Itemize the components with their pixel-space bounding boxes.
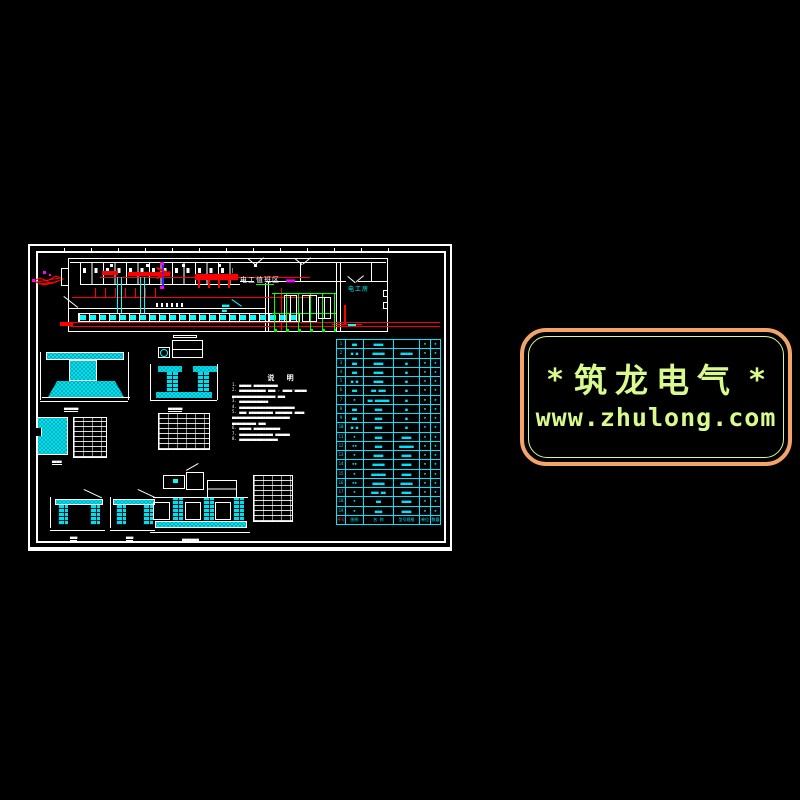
cell-no: 15	[337, 469, 346, 478]
table-row: 15 ▪ ▄▄▄▄▄▄ ▄▄▄▄ ▪ ▪	[337, 469, 441, 478]
cell-name: ▄▄	[364, 497, 394, 506]
cell-unit: ▪	[420, 451, 431, 460]
b-dim	[110, 530, 155, 531]
table-row: 14 ▪▪ ▄▄▄▄▄ ▄▄▄▄ ▪ ▪	[337, 460, 441, 469]
cell-symbol: ▄▄	[346, 404, 364, 413]
table-row: 6 ▄▄ ▄▄ ▄▄▄ ▄ ▪ ▪	[337, 386, 441, 395]
cell-unit: ▪	[420, 432, 431, 441]
cell-symbol: ▪	[346, 506, 364, 515]
equipment-table-body: 1 ▄▄ ▄▄▄▄ ▪ ▪ 2 ▄ ▄ ▄▄▄▄▄ ▄▄▄▄▄ ▪ ▪	[337, 340, 441, 516]
d7-rect	[186, 472, 204, 490]
cell-name: ▄▄▄▄	[364, 340, 394, 349]
cell-spec: ▄▄▄▄▄▄	[394, 441, 420, 450]
cell-no: 9	[337, 414, 346, 423]
d5-dim	[217, 364, 218, 400]
cell-qty: ▪	[431, 460, 441, 469]
label-duty-suffix: ▄▄▄	[286, 277, 295, 283]
cell-no: 17	[337, 488, 346, 497]
cell-unit: ▪	[420, 349, 431, 358]
a-caption: ▄▄▄	[70, 535, 77, 541]
b-dim	[110, 497, 111, 528]
table-row: 19 ▪ ▄▄▄ ▄▄▄▄ ▪ ▪	[337, 506, 441, 515]
cell-name: ▄▄▄▄▄	[364, 478, 394, 487]
cell-name: ▄▄▄	[364, 506, 394, 515]
schedule-table-3	[253, 475, 293, 522]
cell-no: 6	[337, 386, 346, 395]
cell-spec: ▄▄▄▄▄	[394, 349, 420, 358]
cell-symbol: ▄ ▄	[346, 349, 364, 358]
cell-spec: ▄	[394, 358, 420, 367]
scale-bar	[173, 335, 197, 338]
d1-stem	[69, 360, 97, 381]
panel-cabinet	[318, 297, 331, 319]
schedule-table-1	[73, 417, 107, 458]
d7-mark	[173, 479, 178, 483]
table-row: 11 ▪ ▄▄▄ ▄▄▄▄ ▪ ▪	[337, 432, 441, 441]
cell-symbol: ▪▪	[346, 441, 364, 450]
wall-line	[268, 281, 269, 332]
cell-unit: ▪	[420, 423, 431, 432]
cell-qty: ▪	[431, 404, 441, 413]
cell-unit: ▪	[420, 395, 431, 404]
table-row: 18 ▪ ▄▄ ▄▄▄▄ ▪ ▪	[337, 497, 441, 506]
cell-name: ▄▄▄▄▄	[364, 460, 394, 469]
cell-spec: ▄▄▄▄	[394, 451, 420, 460]
b-wall	[116, 505, 126, 525]
cell-qty: ▪	[431, 478, 441, 487]
notes-block: 说 明 1. ▄▄▄▄▄ ▄▄▄▄▄▄▄▄▄▄2. ▄▄▄▄▄▄▄▄▄▄▄ ▄▄…	[232, 374, 333, 441]
a-dim	[50, 497, 51, 528]
cell-qty: ▪	[431, 441, 441, 450]
cell-unit: ▪	[420, 414, 431, 423]
d1-base-line	[42, 397, 130, 398]
cell-qty: ▪	[431, 377, 441, 386]
c-upper-box	[207, 480, 237, 498]
cell-no: 12	[337, 441, 346, 450]
d2-notch	[35, 428, 42, 436]
cell-qty: ▪	[431, 451, 441, 460]
cell-name: ▄▄▄	[364, 441, 394, 450]
b-wall	[143, 505, 153, 525]
cell-unit: ▪	[420, 460, 431, 469]
notes-line: 8. ▄▄▄▄▄▄▄▄▄▄▄▄▄▄▄▄	[232, 436, 333, 441]
d5-base	[156, 392, 212, 398]
header-unit: 单位	[420, 515, 431, 524]
axis-line	[64, 252, 392, 253]
d1-dim	[40, 401, 128, 402]
cell-symbol: ▪	[346, 395, 364, 404]
table-row: 3 ▄▄ ▄▄▄▄ ▄ ▪ ▪	[337, 358, 441, 367]
label-electric-room: 电工房	[348, 286, 369, 293]
cell-spec: ▄	[394, 414, 420, 423]
d2-pad	[37, 417, 68, 455]
cell-no: 14	[337, 460, 346, 469]
cell-spec	[394, 340, 420, 349]
c-base-slab	[155, 521, 247, 528]
green-branch	[256, 284, 274, 285]
cell-symbol: ▄▄	[346, 340, 364, 349]
cell-name: ▄▄▄	[364, 404, 394, 413]
cell-no: 3	[337, 358, 346, 367]
notes-lines: 1. ▄▄▄▄▄ ▄▄▄▄▄▄▄▄▄▄2. ▄▄▄▄▄▄▄▄▄▄▄ ▄▄▄ , …	[232, 382, 333, 441]
cell-symbol: ▪	[346, 497, 364, 506]
cell-symbol: ▪	[346, 488, 364, 497]
cable-red-line	[332, 324, 362, 325]
cell-qty: ▪	[431, 386, 441, 395]
cell-qty: ▪	[431, 469, 441, 478]
cross-symbol-base	[160, 286, 164, 289]
table-row: 4 ▄▄ ▄▄▄▄ ▄ ▪ ▪	[337, 367, 441, 376]
cell-spec: ▄▄▄▄	[394, 506, 420, 515]
cell-symbol: ▪▪	[346, 460, 364, 469]
cable-red-entry	[60, 322, 73, 326]
cell-no: 11	[337, 432, 346, 441]
d1-caption: ▄▄▄▄▄▄	[64, 406, 78, 412]
cell-symbol: ▪	[346, 432, 364, 441]
cell-qty: ▪	[431, 358, 441, 367]
c-caption: ▄▄▄▄▄▄▄	[182, 537, 199, 543]
header-spec: 型号规格	[394, 515, 420, 524]
cell-qty: ▪	[431, 423, 441, 432]
header-no: 序号	[337, 515, 346, 524]
d2-caption: ▄▄▄▄	[52, 459, 62, 465]
c-dim	[150, 532, 250, 533]
cell-no: 8	[337, 404, 346, 413]
d5-dim	[150, 400, 217, 401]
cell-no: 18	[337, 497, 346, 506]
a-wall	[58, 505, 68, 525]
cell-qty: ▪	[431, 506, 441, 515]
table-row: 12 ▪▪ ▄▄▄ ▄▄▄▄▄▄ ▪ ▪	[337, 441, 441, 450]
cell-symbol: ▪	[346, 469, 364, 478]
cable-red-bottom	[70, 322, 440, 323]
table-row: 1 ▄▄ ▄▄▄▄ ▪ ▪	[337, 340, 441, 349]
table-row: 13 ▪ ▄▄▄▄ ▄▄▄▄ ▪ ▪	[337, 451, 441, 460]
window-mark	[383, 302, 388, 309]
d1-base	[48, 381, 124, 397]
cell-name: ▄▄▄▄	[364, 377, 394, 386]
cell-name: ▄▄▄▄▄▄	[364, 469, 394, 478]
cell-name: ▄▄▄▄▄	[364, 349, 394, 358]
cell-unit: ▪	[420, 478, 431, 487]
notes-title: 说 明	[232, 374, 333, 382]
table-row: 16 ▪▪ ▄▄▄▄▄ ▄▄▄▄▄ ▪ ▪	[337, 478, 441, 487]
d4-detail	[172, 340, 203, 358]
cell-qty: ▪	[431, 340, 441, 349]
cell-no: 13	[337, 451, 346, 460]
cable-red-stubs	[95, 288, 165, 297]
wall-line	[371, 262, 372, 281]
cell-name: ▄▄▄▄	[364, 367, 394, 376]
cell-no: 10	[337, 423, 346, 432]
c-pier	[203, 498, 214, 521]
cell-qty: ▪	[431, 497, 441, 506]
table-row: 2 ▄ ▄ ▄▄▄▄▄ ▄▄▄▄▄ ▪ ▪	[337, 349, 441, 358]
a-dim	[50, 530, 105, 531]
cell-unit: ▪	[420, 340, 431, 349]
cell-symbol: ▄▄	[346, 358, 364, 367]
cell-spec: ▄	[394, 377, 420, 386]
green-terminals	[274, 329, 336, 332]
cell-no: 5	[337, 377, 346, 386]
wall-line	[265, 281, 266, 332]
table-row: 8 ▄▄ ▄▄▄ ▄ ▪ ▪	[337, 404, 441, 413]
cell-symbol: ▄ ▄	[346, 377, 364, 386]
cell-unit: ▪	[420, 488, 431, 497]
cell-spec: ▄▄▄▄▄	[394, 478, 420, 487]
cell-symbol: ▄▄	[346, 386, 364, 395]
panel-cabinet	[302, 295, 317, 322]
d5-wall	[166, 372, 178, 392]
table-row: 7 ▪ ▄▄ ▄▄▄▄▄▄ ▄ ▪ ▪	[337, 395, 441, 404]
cell-unit: ▪	[420, 441, 431, 450]
cell-symbol: ▄ ▄	[346, 423, 364, 432]
watermark-inner-border	[528, 336, 784, 458]
cell-name: ▄▄▄	[364, 414, 394, 423]
d4-circle	[160, 349, 168, 357]
d1-dim	[40, 352, 41, 400]
cell-symbol: ▄▄	[346, 367, 364, 376]
cell-name: ▄▄▄ ▄▄	[364, 488, 394, 497]
cell-name: ▄▄ ▄▄▄▄▄▄	[364, 395, 394, 404]
panel-cabinet	[284, 295, 297, 322]
cell-qty: ▪	[431, 414, 441, 423]
left-annex	[61, 268, 69, 286]
cable-tray-cells	[80, 315, 298, 320]
door-tag-dots	[110, 264, 260, 267]
cable-red-block	[102, 271, 118, 275]
cell-symbol: ▄▄	[346, 414, 364, 423]
cell-unit: ▪	[420, 367, 431, 376]
cyan-tick	[348, 324, 356, 326]
cell-no: 4	[337, 367, 346, 376]
c-bay	[215, 502, 231, 520]
equipment-table-header: 序号 图例 名 称 型号规格 单位 数量	[337, 515, 441, 524]
cyan-riser	[117, 277, 122, 313]
a-wall	[90, 505, 100, 525]
table-row: 9 ▄▄ ▄▄▄ ▄ ▪ ▪	[337, 414, 441, 423]
cell-name: ▄▄▄▄	[364, 358, 394, 367]
cell-unit: ▪	[420, 469, 431, 478]
cell-symbol: ▪▪	[346, 478, 364, 487]
cell-spec: ▄▄▄▄	[394, 497, 420, 506]
label-duty-area: 电工值班区	[240, 276, 280, 284]
cell-spec: ▄	[394, 386, 420, 395]
cell-no: 19	[337, 506, 346, 515]
zhulong-watermark: * 筑龙电气 * www.zhulong.com	[520, 328, 792, 466]
cell-qty: ▪	[431, 432, 441, 441]
header-name: 名 称	[364, 515, 394, 524]
equipment-table: 1 ▄▄ ▄▄▄▄ ▪ ▪ 2 ▄ ▄ ▄▄▄▄▄ ▄▄▄▄▄ ▪ ▪	[336, 339, 441, 525]
cable-red-drops	[198, 280, 238, 288]
cell-symbol: ▪	[346, 451, 364, 460]
cad-canvas: 电工值班区 ▄▄▄ 电工房 ▄▄▄ ▄▄ ▄▄▄▄▄▄ ▄▄▄▄ ▄▄▄▄▄▄ …	[0, 0, 800, 800]
c-bay	[185, 502, 201, 520]
cell-unit: ▪	[420, 506, 431, 515]
cell-name: ▄▄▄	[364, 432, 394, 441]
cell-no: 1	[337, 340, 346, 349]
table-row: 10 ▄ ▄ ▄▄▄ ▄ ▪ ▪	[337, 423, 441, 432]
cell-no: 16	[337, 478, 346, 487]
cell-spec: ▄	[394, 395, 420, 404]
corridor-line	[68, 308, 266, 309]
c-pier	[172, 498, 183, 521]
cell-name: ▄▄ ▄▄▄	[364, 386, 394, 395]
cable-red-bottom	[70, 326, 440, 327]
table-row: 17 ▪ ▄▄▄ ▄▄ ▄▄▄▄ ▪ ▪	[337, 488, 441, 497]
table-row: 5 ▄ ▄ ▄▄▄▄ ▄ ▪ ▪	[337, 377, 441, 386]
axis-ticks	[64, 248, 392, 252]
cell-spec: ▄▄▄▄	[394, 432, 420, 441]
cell-name: ▄▄▄▄	[364, 451, 394, 460]
cell-no: 7	[337, 395, 346, 404]
cell-qty: ▪	[431, 349, 441, 358]
b-caption: ▄▄▄	[126, 535, 133, 541]
leader-label: ▄▄	[222, 308, 227, 312]
d1-top-bar	[46, 352, 124, 360]
window-mark	[383, 290, 388, 297]
header-symbol: 图例	[346, 515, 364, 524]
cell-spec: ▄▄▄▄	[394, 460, 420, 469]
cell-spec: ▄	[394, 423, 420, 432]
c-bay	[153, 502, 170, 520]
cell-unit: ▪	[420, 497, 431, 506]
cell-unit: ▪	[420, 358, 431, 367]
c-pier	[233, 498, 244, 521]
d5-dim	[150, 364, 151, 400]
cell-name: ▄▄▄	[364, 423, 394, 432]
cell-unit: ▪	[420, 404, 431, 413]
cell-spec: ▄▄▄▄	[394, 488, 420, 497]
cell-spec: ▄▄▄▄	[394, 469, 420, 478]
header-qty: 数量	[431, 515, 441, 524]
table-header-row: 序号 图例 名 称 型号规格 单位 数量	[337, 515, 441, 524]
d1-dim	[128, 352, 129, 400]
cell-spec: ▄	[394, 404, 420, 413]
cyan-riser	[140, 277, 145, 313]
cell-qty: ▪	[431, 367, 441, 376]
cell-no: 2	[337, 349, 346, 358]
d5-wall	[197, 372, 209, 392]
cell-spec: ▄	[394, 367, 420, 376]
tiny-glyph-row	[156, 303, 184, 307]
schedule-table-2	[158, 413, 210, 450]
cell-qty: ▪	[431, 395, 441, 404]
cell-unit: ▪	[420, 386, 431, 395]
cell-unit: ▪	[420, 377, 431, 386]
d5-caption: ▄▄▄▄▄▄	[168, 406, 182, 412]
cell-qty: ▪	[431, 488, 441, 497]
